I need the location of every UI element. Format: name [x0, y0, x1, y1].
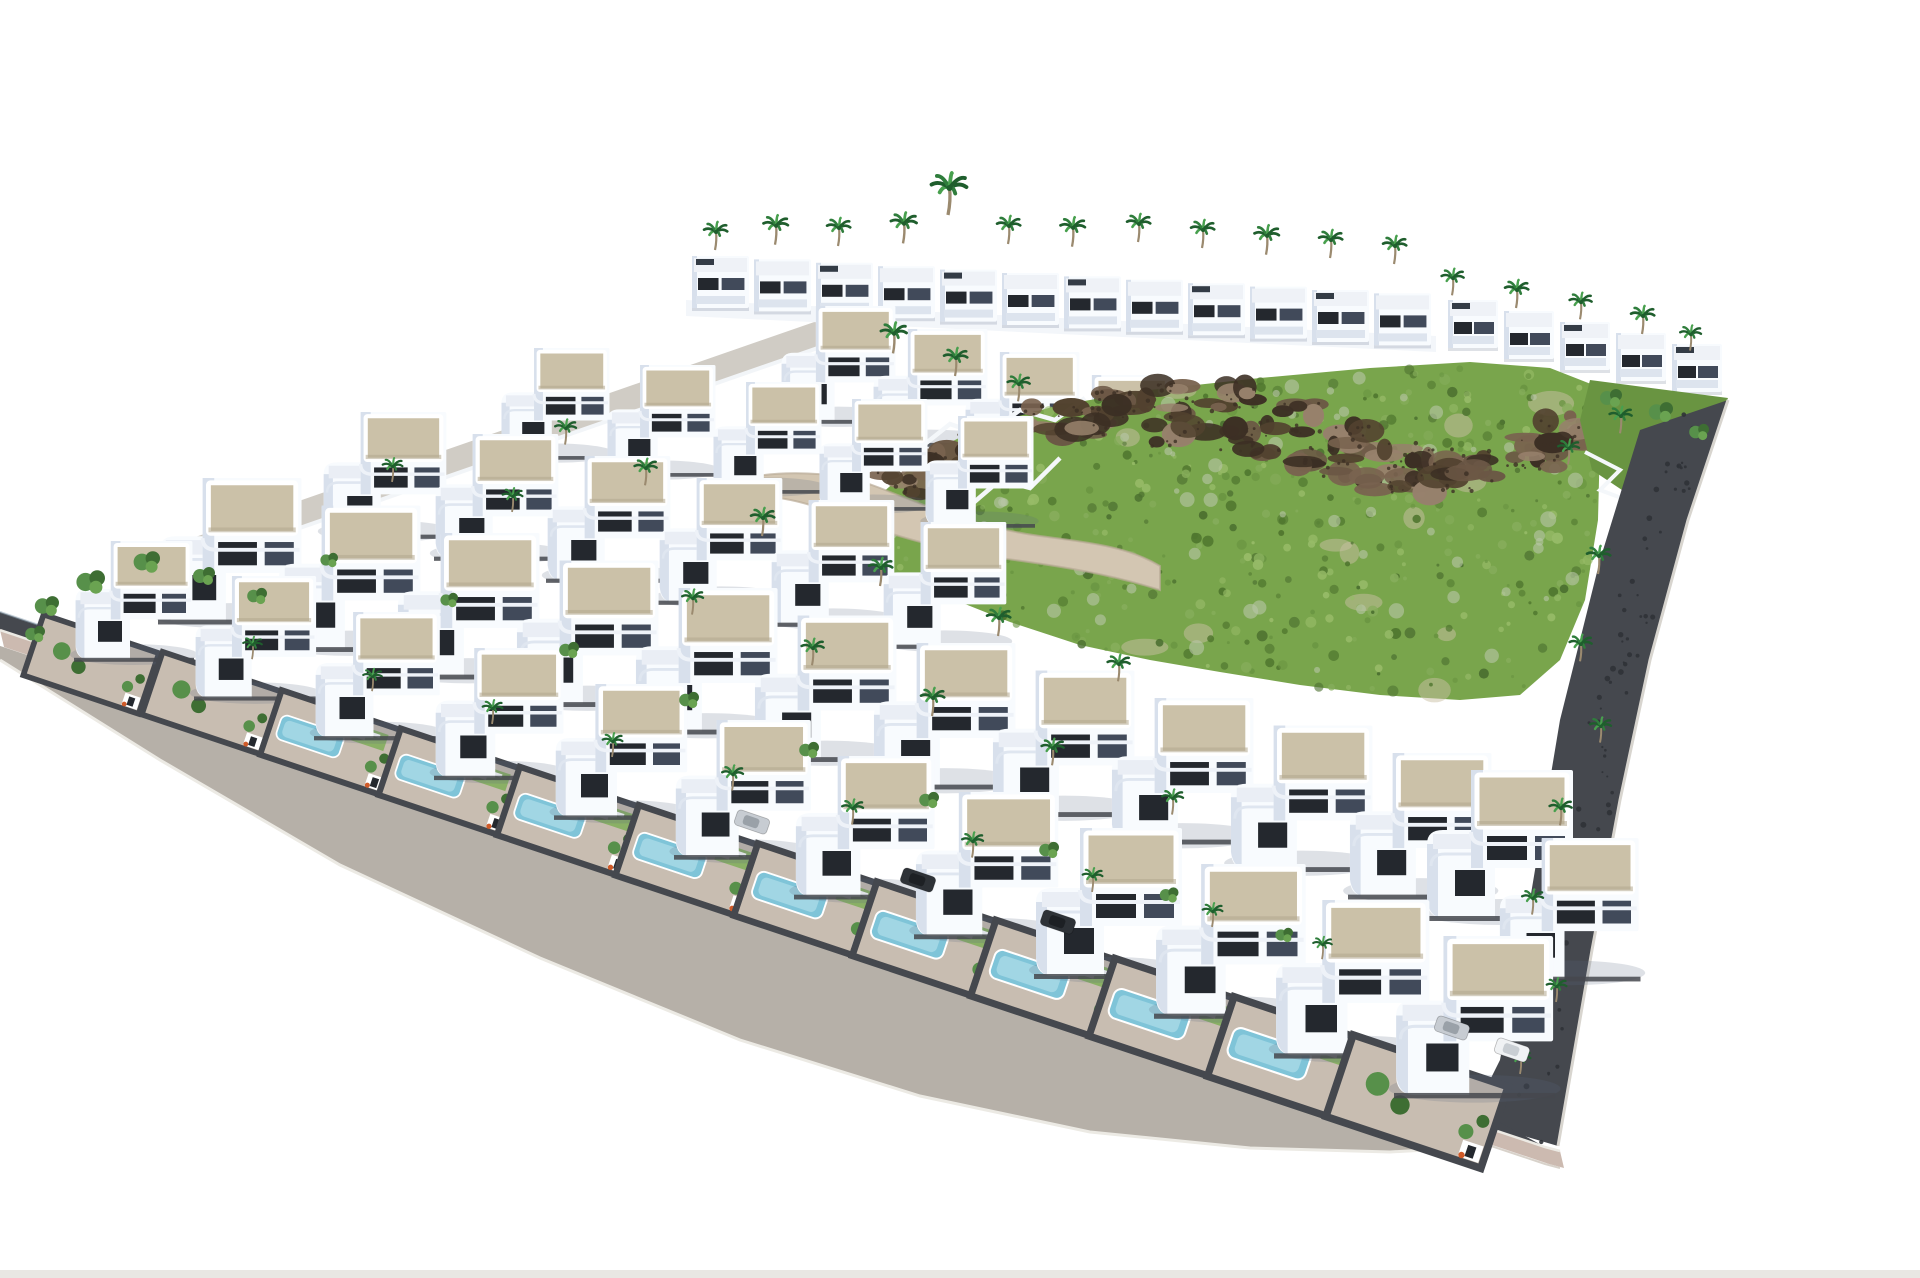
development-aerial-render [0, 0, 1920, 1278]
rock-speckle [1387, 467, 1390, 470]
palm-trunk [1516, 290, 1517, 308]
roof-edge [856, 437, 923, 441]
wing-window [702, 813, 730, 837]
palm-crown [1531, 897, 1535, 901]
hill-scrub [1554, 594, 1561, 601]
rock-speckle [1550, 442, 1554, 446]
gravel-speckle [1596, 827, 1600, 831]
palm-trunk [1202, 230, 1203, 248]
hill-scrub [1283, 544, 1291, 552]
tree-canopy [203, 575, 213, 585]
sand-patch [1444, 414, 1473, 438]
palm-crown [851, 807, 855, 811]
wing-window [219, 659, 244, 680]
palm-crown [1579, 300, 1583, 304]
hill-scrub [1049, 511, 1060, 522]
roof-edge [446, 582, 533, 587]
window-mid [1280, 309, 1303, 321]
rock-speckle [913, 485, 917, 489]
terrace-band [1564, 358, 1606, 366]
gravel-speckle [1665, 462, 1670, 467]
hill-scrub [1515, 468, 1520, 473]
window-mid [638, 511, 663, 531]
rock-speckle [944, 456, 947, 459]
rock-speckle [1179, 435, 1181, 437]
terrace-band [1676, 380, 1718, 388]
hill-scrub [1408, 433, 1413, 438]
wing-window [1185, 967, 1216, 994]
hill-scrub [1138, 492, 1144, 498]
gravel-roof [962, 420, 1029, 458]
tree-canopy [688, 699, 697, 708]
rock-speckle [1072, 406, 1075, 409]
palm-crown [691, 597, 695, 601]
hill-scrub [1496, 422, 1504, 430]
sage-bush [1087, 593, 1100, 606]
hill-scrub [1276, 594, 1281, 599]
rock-speckle [1577, 426, 1580, 429]
roof-edge [358, 655, 435, 659]
hill-scrub [1507, 584, 1510, 587]
rock-speckle [1174, 440, 1178, 444]
gravel-speckle [1681, 462, 1683, 464]
palm-crown [1117, 662, 1121, 666]
window-dark [1096, 894, 1136, 918]
palm-trunk [1172, 798, 1173, 814]
roof-pergola [1068, 279, 1086, 285]
wing-window [823, 851, 852, 876]
gravel-speckle [1600, 708, 1602, 710]
rock-speckle [1253, 427, 1256, 430]
sage-bush [1189, 548, 1201, 560]
hill-scrub [1413, 371, 1419, 377]
hill-scrub [1330, 585, 1339, 594]
terrace-band [1006, 313, 1055, 321]
bottom-edge-strip [0, 1270, 1920, 1278]
hill-scrub [1524, 531, 1527, 534]
hill-scrub [1571, 519, 1578, 526]
sage-bush [1180, 492, 1195, 507]
gravel-roof [1086, 833, 1176, 885]
sage-bush [1252, 600, 1266, 614]
hill-scrub [1244, 553, 1252, 561]
tree-canopy [1168, 894, 1177, 903]
rock-speckle [1431, 448, 1434, 451]
sage-bush [998, 498, 1007, 507]
window-mid [860, 680, 889, 703]
terrace-band [1068, 316, 1117, 324]
hill-scrub [1123, 450, 1132, 459]
wing-window [571, 540, 596, 562]
hill-scrub [1411, 504, 1416, 509]
rock-speckle [1132, 409, 1135, 412]
rock-speckle [1157, 383, 1160, 386]
rock-blob [1533, 408, 1559, 433]
hill-scrub [1576, 385, 1582, 391]
window-dark [1170, 762, 1209, 785]
rock-speckle [1318, 429, 1322, 433]
gravel-roof [538, 352, 605, 390]
hill-scrub [1075, 635, 1078, 638]
roof-edge [1450, 991, 1547, 996]
roof-edge [962, 454, 1029, 458]
hill-scrub [1503, 504, 1509, 510]
hill-scrub [1468, 524, 1475, 531]
hill-scrub [1511, 675, 1514, 678]
palm-trunk [715, 232, 716, 250]
hill-scrub [1447, 387, 1457, 397]
rock-blob [1377, 439, 1393, 461]
hill-scrub [1308, 534, 1318, 544]
window-dark [946, 292, 967, 304]
sage-bush [1471, 447, 1477, 453]
back-row-house [1002, 273, 1059, 328]
rock-speckle [1348, 432, 1352, 436]
gravel-roof [208, 483, 295, 533]
palm-crown [954, 356, 958, 360]
gravel-speckle [1630, 579, 1635, 584]
sage-bush [1095, 614, 1106, 625]
palm-crown [1689, 333, 1693, 337]
hill-scrub [1195, 599, 1205, 609]
hill-scrub [1285, 576, 1292, 583]
palm-crown [251, 643, 254, 646]
hill-scrub [1327, 494, 1334, 501]
hill-scrub [1485, 420, 1491, 426]
palm-crown [997, 616, 1001, 620]
rock-speckle [1573, 435, 1576, 438]
sage-bush [1047, 604, 1061, 618]
back-row-house [1504, 311, 1554, 362]
window-dark [575, 625, 614, 648]
rock-speckle [1265, 435, 1267, 437]
roof-pergola [944, 273, 962, 279]
hill-scrub [1258, 579, 1266, 587]
palm-crown [1007, 224, 1011, 228]
hill-scrub [1251, 541, 1254, 544]
hill-scrub [1278, 660, 1288, 670]
hill-scrub [1185, 609, 1194, 618]
rock-blob [1232, 441, 1264, 457]
roof-edge [750, 420, 817, 424]
rock-speckle [1389, 485, 1393, 489]
hill-scrub [1219, 577, 1226, 584]
palm-trunk [1452, 278, 1453, 295]
back-row-house [1560, 322, 1610, 373]
palm-trunk [1568, 448, 1569, 464]
rock-speckle [1445, 484, 1449, 488]
rock-speckle [1179, 401, 1181, 403]
hill-scrub [1241, 662, 1252, 673]
back-row-house [940, 270, 997, 325]
back-row-house [692, 256, 749, 311]
hill-scrub [1456, 365, 1463, 372]
hill-scrub [1506, 622, 1510, 626]
window-mid [1603, 901, 1632, 924]
window-dark [1557, 901, 1595, 924]
wing-window [943, 890, 972, 915]
palm-crown [371, 675, 374, 678]
rock-speckle [1538, 467, 1541, 470]
rock-speckle [1128, 390, 1132, 394]
rock-speckle [1411, 452, 1414, 455]
hill-scrub [1028, 494, 1039, 505]
window-dark [1380, 315, 1401, 327]
palm-crown [1051, 746, 1055, 750]
palm-crown [1393, 244, 1397, 248]
rock-speckle [1303, 460, 1308, 465]
window-mid [1530, 333, 1550, 345]
hill-scrub [1542, 504, 1547, 509]
palm-trunk [838, 228, 839, 246]
back-row-house [1064, 276, 1121, 331]
window-mid [1218, 305, 1241, 317]
rock-speckle [1226, 394, 1228, 396]
hill-scrub [1477, 507, 1487, 517]
wing-window [1258, 823, 1287, 848]
roof-edge [913, 369, 983, 373]
gravel-speckle [1539, 1140, 1543, 1144]
gravel-roof [358, 616, 435, 660]
hill-scrub [1525, 373, 1531, 379]
gravel-roof [913, 333, 983, 374]
hill-scrub [1058, 596, 1068, 606]
gravel-speckle [1607, 810, 1613, 816]
hill-scrub [1171, 642, 1178, 649]
gravel-roof [237, 580, 311, 623]
hill-scrub [1375, 664, 1383, 672]
hill-scrub [1107, 580, 1111, 584]
hill-scrub [1394, 540, 1402, 548]
gravel-roof [601, 689, 682, 736]
gravel-speckle [1636, 594, 1638, 596]
hill-scrub [1071, 590, 1075, 594]
rock-blob [1283, 456, 1323, 467]
hill-scrub [1412, 515, 1420, 523]
rock-speckle [1521, 439, 1523, 441]
hill-scrub [1391, 494, 1397, 500]
roof-edge [1160, 747, 1247, 752]
window-dark [1256, 309, 1277, 321]
window-mid [653, 743, 680, 765]
sage-bush [1273, 390, 1280, 397]
window-mid [1021, 856, 1050, 879]
rock-speckle [1309, 446, 1313, 450]
window-dark [1510, 333, 1528, 345]
window-mid [384, 570, 413, 593]
palm-crown [879, 566, 883, 570]
window-dark [884, 288, 905, 300]
house-roof [880, 268, 933, 282]
palm-trunk [1008, 226, 1009, 244]
hill-scrub [1144, 519, 1149, 524]
window-dark [731, 781, 768, 803]
back-row-house [1250, 287, 1307, 342]
rock-speckle [1096, 407, 1101, 412]
hill-scrub [1262, 510, 1270, 518]
rock-speckle [1116, 390, 1118, 392]
hill-scrub [1427, 381, 1436, 390]
rock-speckle [1462, 454, 1466, 458]
palm-trunk [565, 428, 566, 444]
hill-scrub [1132, 462, 1135, 465]
hill-scrub [1102, 530, 1108, 536]
wing-window [907, 606, 932, 628]
gravel-speckle [1639, 615, 1642, 618]
gravel-speckle [1610, 791, 1614, 795]
rock-speckle [1437, 469, 1441, 473]
palm-trunk [955, 358, 956, 376]
hill-scrub [1318, 570, 1327, 579]
hill-scrub [1087, 503, 1097, 513]
hill-scrub [1256, 382, 1266, 392]
tree-canopy [1610, 397, 1620, 407]
window-dark [698, 278, 719, 290]
sage-bush [1356, 604, 1366, 614]
roof-edge [1086, 879, 1176, 884]
window-dark [813, 680, 852, 703]
hill-scrub [1278, 530, 1284, 536]
roof-edge [1207, 916, 1299, 921]
rock-speckle [1258, 421, 1262, 425]
tree-canopy [808, 749, 817, 758]
tree-canopy [1698, 431, 1707, 440]
hill-scrub [1092, 529, 1098, 535]
back-row-house [1126, 280, 1183, 335]
roof-edge [1005, 392, 1075, 396]
palm-crown [1071, 226, 1075, 230]
hill-scrub [1519, 389, 1526, 396]
hill-scrub [1289, 617, 1300, 628]
palm-trunk [903, 224, 904, 244]
palm-trunk [1556, 987, 1557, 1002]
window-dark [1487, 836, 1527, 860]
hill-scrub [1586, 494, 1590, 498]
palm-trunk [492, 709, 493, 724]
rock-speckle [1160, 388, 1164, 392]
hill-scrub [1479, 669, 1489, 679]
palm-trunk [1212, 912, 1213, 927]
sage-bush [1531, 394, 1537, 400]
gravel-roof [480, 652, 559, 698]
palm-crown [1597, 554, 1601, 558]
palm-trunk [1330, 240, 1331, 258]
rock-speckle [1100, 390, 1104, 394]
hill-scrub [1209, 484, 1215, 490]
hill-scrub [1211, 611, 1215, 615]
hill-scrub [1257, 630, 1268, 641]
gravel-speckle [1684, 465, 1687, 468]
hill-scrub [1352, 637, 1357, 642]
rock-speckle [1169, 390, 1171, 392]
hill-scrub [1223, 589, 1231, 597]
tree-canopy [46, 605, 57, 616]
rock-speckle [1075, 409, 1079, 413]
hill-scrub [1148, 590, 1158, 600]
gravel-roof [750, 386, 817, 424]
palm-crown [1555, 985, 1558, 988]
hill-scrub [1269, 618, 1273, 622]
window-dark [1454, 322, 1472, 334]
rock-speckle [1388, 443, 1390, 445]
window-dark [1194, 305, 1215, 317]
hill-scrub [1444, 548, 1452, 556]
hill-scrub [1149, 454, 1153, 458]
palm-trunk [392, 467, 393, 482]
roof-edge [565, 610, 652, 615]
sage-bush [1120, 433, 1129, 442]
sage-bush [1285, 379, 1299, 393]
rock-speckle [1252, 388, 1255, 391]
rock-speckle [1464, 471, 1469, 476]
hill-scrub [1377, 672, 1380, 675]
sage-bush [1502, 587, 1511, 596]
window-dark [456, 597, 495, 620]
gravel-speckle [1665, 470, 1668, 473]
roof-pergola [696, 259, 714, 265]
rock-speckle [1219, 448, 1222, 451]
window-mid [1005, 465, 1027, 483]
gravel-speckle [1623, 661, 1625, 663]
palm-trunk [1018, 384, 1019, 401]
hill-scrub [1538, 643, 1547, 652]
rock-speckle [1166, 440, 1168, 442]
gravel-roof [1279, 730, 1366, 780]
roof-edge [480, 693, 559, 697]
tree-canopy [1048, 849, 1057, 858]
hill-scrub [1581, 569, 1585, 573]
palm-crown [971, 840, 975, 844]
palm-crown [837, 226, 841, 230]
hill-scrub [1013, 620, 1021, 628]
roof-pergola [820, 266, 838, 272]
window-dark [1339, 969, 1381, 994]
rock-speckle [1236, 394, 1238, 396]
rock-speckle [1367, 425, 1371, 429]
hill-scrub [897, 546, 900, 549]
rock-speckle [1090, 406, 1094, 410]
palm-trunk [998, 618, 999, 636]
house-roof [756, 261, 809, 275]
gravel-speckle [1645, 622, 1647, 624]
window-dark [822, 285, 843, 297]
hill-scrub [1391, 654, 1397, 660]
rock-speckle [1346, 462, 1349, 465]
hill-scrub [1528, 601, 1531, 604]
hill-scrub [1426, 668, 1434, 676]
back-row-house [1312, 290, 1369, 345]
window-dark [652, 414, 682, 432]
window-mid [776, 781, 804, 803]
sage-bush [1568, 473, 1583, 488]
sage-bush [1452, 557, 1463, 568]
hill-scrub [1222, 472, 1230, 480]
wing-window [628, 439, 650, 458]
rock-speckle [1506, 464, 1509, 467]
hill-scrub [1102, 500, 1108, 506]
rock-speckle [1389, 481, 1391, 483]
gravel-roof [478, 438, 554, 482]
palm-crown [564, 427, 568, 431]
hill-scrub [1086, 629, 1090, 633]
palm-crown [611, 740, 614, 743]
hill-scrub [1354, 498, 1361, 505]
hill-scrub [1498, 627, 1504, 633]
hill-scrub [1447, 579, 1455, 587]
palm-crown [1265, 234, 1269, 238]
terrace-band [1620, 369, 1662, 377]
rock-speckle [1024, 409, 1027, 412]
